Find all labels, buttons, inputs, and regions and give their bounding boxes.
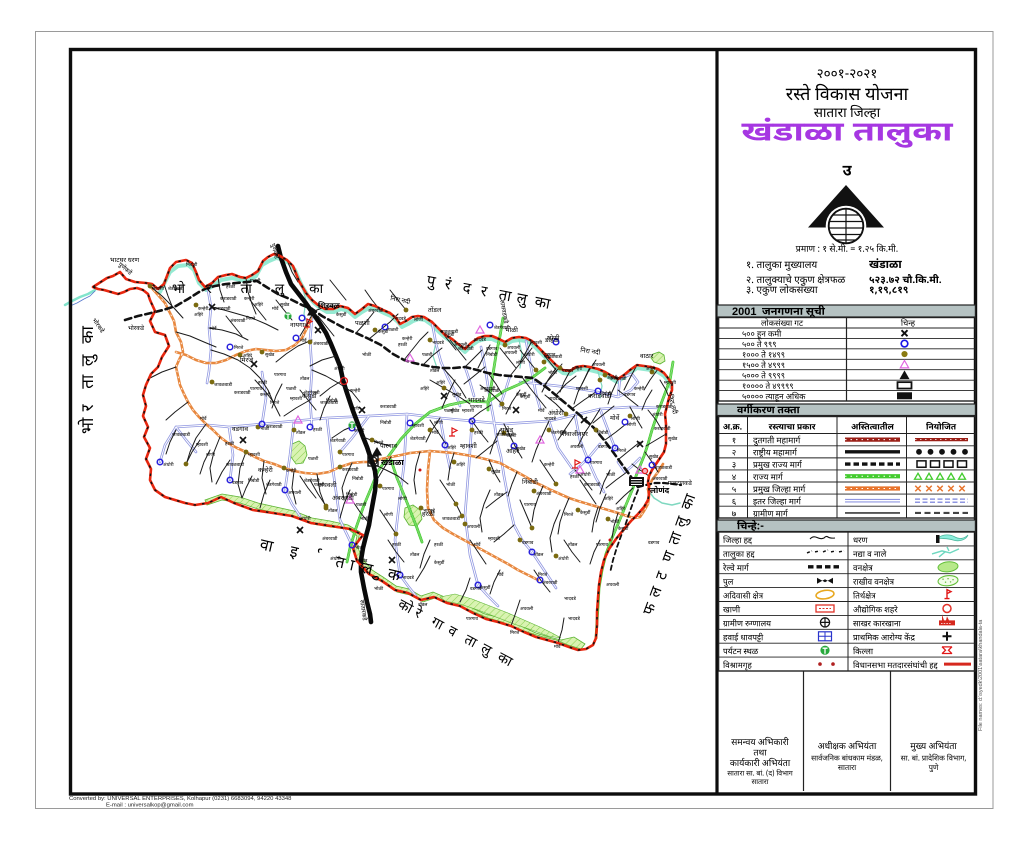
svg-text:Converted by: UNIVERSAL ENTERP: Converted by: UNIVERSAL ENTERPRISES, Kol… <box>69 796 292 802</box>
svg-text:2001: 2001 <box>732 306 756 318</box>
svg-text:File names: d:\syedk\2001\sata: File names: d:\syedk\2001\satara\khandal… <box>978 619 984 731</box>
svg-text:E-mail : universalkop@gmail.co: E-mail : universalkop@gmail.com <box>106 802 194 808</box>
